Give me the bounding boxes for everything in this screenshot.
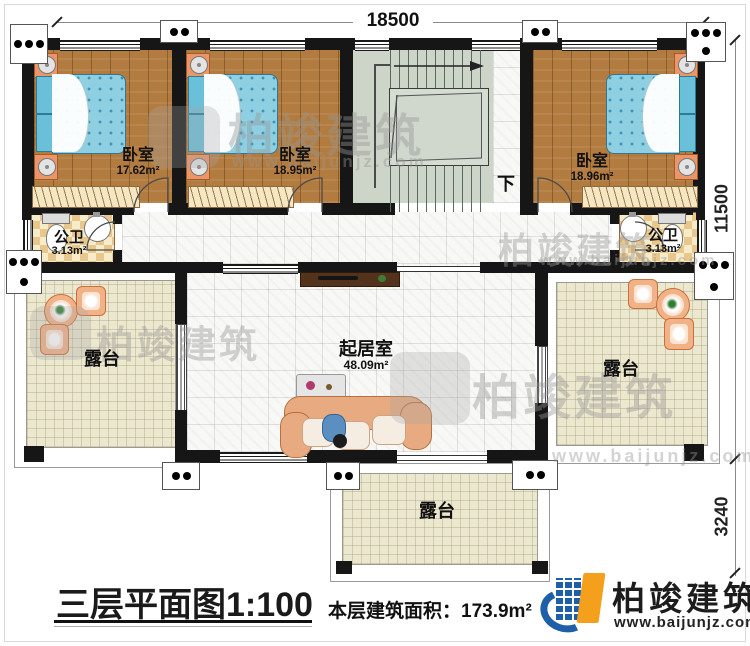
room-label-bathroom-right: 公卫 — [634, 228, 692, 244]
watermark-website: www.baijunjz.com — [552, 446, 750, 467]
room-label-living: 起居室 — [326, 340, 406, 359]
floor-area-note: 本层建筑面积：173.9m² — [328, 596, 532, 623]
pipe-column-symbol — [686, 22, 726, 62]
dimension-top-label: 18500 — [353, 11, 433, 31]
logo-company-name: 柏竣建筑 — [612, 572, 750, 620]
room-label-bathroom-left: 公卫 — [40, 230, 98, 246]
stair-direction-label: 下 — [494, 175, 518, 194]
company-logo: 柏竣建筑 www.baijunjz.com — [538, 570, 748, 640]
room-area-bedroom-left: 17.62m² — [98, 165, 178, 177]
floor-plan-canvas: 卧室 17.62m² 卧室 18.95m² 卧室 18.96m² 公卫 3.13… — [0, 0, 750, 646]
pipe-column-symbol — [326, 462, 360, 490]
room-area-living: 48.09m² — [326, 359, 406, 372]
pipe-column-symbol — [522, 20, 558, 43]
logo-website: www.baijunjz.com — [614, 614, 750, 631]
room-area-bedroom-middle: 18.95m² — [255, 165, 335, 177]
pipe-column-symbol — [6, 250, 42, 294]
stair-up-arrow — [394, 61, 484, 71]
pipe-column-symbol — [160, 20, 198, 43]
pipe-column-symbol — [162, 462, 200, 490]
pipe-column-symbol — [10, 24, 48, 64]
title-underline-shadow — [54, 626, 312, 627]
room-area-bedroom-right: 18.96m² — [550, 171, 634, 183]
room-area-bathroom-left: 3.13m² — [40, 246, 98, 258]
room-label-terrace-right: 露台 — [590, 360, 652, 379]
room-area-bathroom-right: 3.13m² — [634, 244, 692, 256]
plan-title: 三层平面图1:100 — [56, 577, 313, 626]
room-label-bedroom-middle: 卧室 — [255, 148, 335, 165]
title-underline — [54, 620, 312, 623]
room-label-bedroom-left: 卧室 — [98, 148, 178, 165]
room-label-bedroom-right: 卧室 — [552, 154, 632, 171]
room-label-terrace-bottom: 露台 — [406, 502, 468, 521]
dimension-right-upper-label: 11500 — [712, 179, 733, 239]
dimension-right-lower-label: 3240 — [712, 487, 733, 547]
room-label-terrace-left: 露台 — [72, 350, 132, 369]
